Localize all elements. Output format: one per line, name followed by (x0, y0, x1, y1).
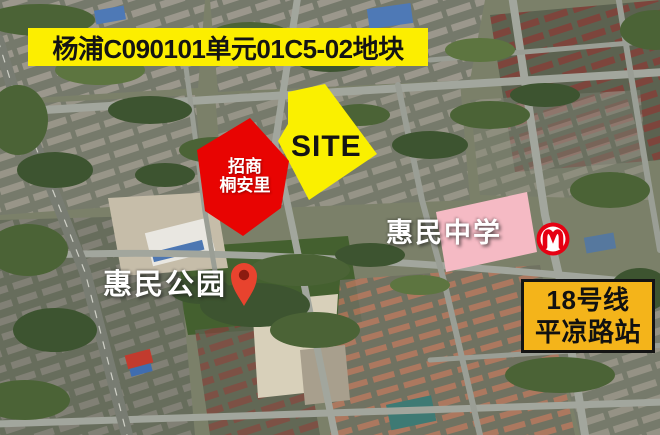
school-label: 惠民中学 (386, 211, 502, 250)
metro-line-label: 18号线 (547, 284, 630, 316)
metro-station-name: 平凉路站 (535, 316, 641, 348)
metro-station-callout: 18号线 平凉路站 (521, 279, 655, 353)
project-label-line2: 桐安里 (202, 176, 288, 195)
site-parcel-label: SITE (291, 130, 362, 164)
title-banner: 杨浦C090101单元01C5-02地块 (28, 28, 428, 66)
project-parcel-label: 招商 桐安里 (202, 157, 288, 195)
project-label-line1: 招商 (202, 157, 288, 176)
park-label: 惠民公园 (103, 261, 227, 303)
metro-logo-icon (537, 223, 570, 256)
annotated-map: 杨浦C090101单元01C5-02地块 SITE 招商 桐安里 惠民中学 惠民… (0, 0, 660, 435)
